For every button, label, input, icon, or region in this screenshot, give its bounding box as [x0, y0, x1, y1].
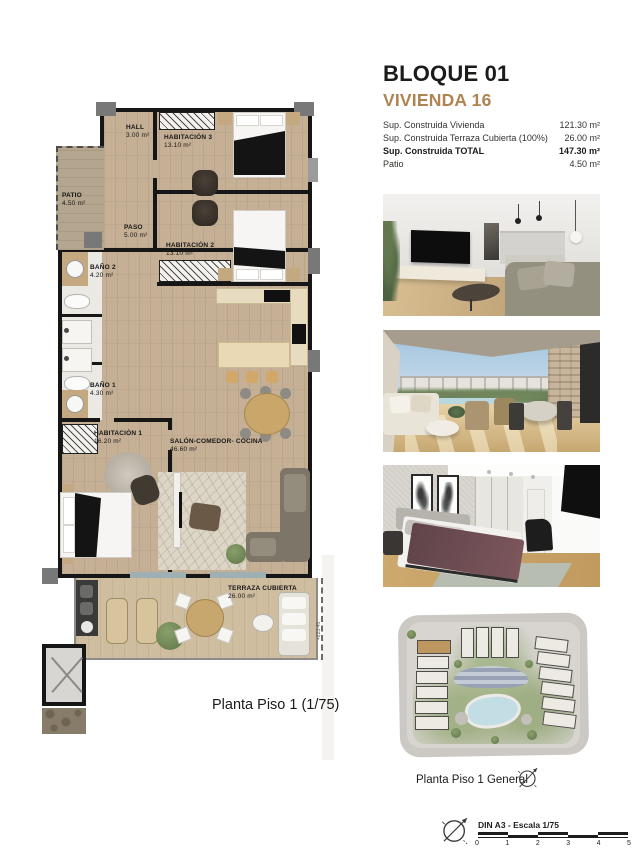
- toilet: [64, 294, 90, 309]
- terrace-dashed-edge: [321, 578, 323, 660]
- scale-tick: 5: [627, 840, 631, 847]
- shower-head: [64, 328, 69, 333]
- nightstand: [383, 531, 403, 555]
- patio-door: [84, 232, 102, 248]
- hab1-right-wall: [168, 418, 172, 430]
- sink: [66, 395, 84, 413]
- scale-block: DIN A3 - Escala 1/75 0 1 2 3 4 5: [478, 820, 631, 847]
- outdoor-kitchen: [76, 580, 98, 636]
- room-label-habitacion3: HABITACIÓN 313.10 m²: [164, 134, 212, 150]
- photo-living-room: [383, 194, 600, 316]
- tv: [411, 230, 470, 264]
- tree: [527, 730, 537, 740]
- tree: [491, 736, 499, 744]
- pendant-lamp: [518, 204, 519, 220]
- corridor-wall: [153, 112, 157, 160]
- wardrobe: [159, 112, 215, 130]
- block-title: BLOQUE 01: [383, 61, 510, 87]
- door-jamb: [42, 568, 58, 584]
- building-unit: [476, 627, 489, 658]
- grill: [80, 585, 93, 598]
- bedroom-divider-wall: [157, 190, 312, 194]
- artwork-print: [415, 481, 429, 513]
- scale-numbers: 0 1 2 3 4 5: [475, 840, 631, 847]
- sink: [66, 260, 84, 278]
- hab1-top-wall: [62, 418, 100, 422]
- window: [308, 158, 318, 182]
- coffee-table: [426, 420, 459, 436]
- sofa-cushion: [410, 394, 431, 413]
- building-highlighted-unit: [417, 640, 451, 654]
- pillow: [63, 497, 75, 525]
- kitchen-island: [218, 342, 290, 368]
- coffee-table-leg: [470, 299, 472, 311]
- outdoor-sofa: [278, 592, 310, 656]
- stool: [266, 371, 278, 383]
- outdoor-table: [186, 599, 224, 637]
- grill: [80, 602, 93, 615]
- blanket: [234, 247, 285, 269]
- chair: [525, 518, 553, 551]
- floorplan: +223.45 HALL3.00 m² HABITACIÓN 313.10 m²…: [40, 100, 342, 750]
- hab1-top-wall: [114, 418, 172, 422]
- surface-label: Patio: [383, 158, 404, 171]
- scale-tick: 1: [505, 840, 509, 847]
- surface-label: Sup. Construida Terraza Cubierta (100%): [383, 132, 548, 145]
- tv: [561, 465, 600, 519]
- scale-segment: [478, 832, 508, 835]
- siteplan: [399, 612, 588, 762]
- surface-row-total: Sup. Construida TOTAL147.30 m²: [383, 145, 600, 158]
- spotlight: [487, 470, 491, 474]
- surface-value: 121.30 m²: [559, 119, 600, 132]
- sofa-cushion: [542, 261, 575, 288]
- siteplan-caption: Planta Piso 1 General: [416, 774, 528, 786]
- pergola-rows: [454, 666, 528, 688]
- scale-tick: 3: [566, 840, 570, 847]
- building-unit: [491, 627, 504, 658]
- armchair: [192, 170, 218, 196]
- dining-table: [244, 393, 290, 435]
- room-label-bano2: BAÑO 24.20 m²: [90, 264, 116, 280]
- blanket: [75, 493, 101, 557]
- door-jamb: [96, 102, 116, 116]
- outdoor-sink: [81, 621, 93, 633]
- building-unit: [415, 701, 448, 714]
- stool: [226, 371, 238, 383]
- salon-divider-wall: [157, 282, 312, 286]
- building-unit: [417, 656, 449, 669]
- scale-segment: [508, 835, 538, 838]
- scale-tick: 0: [475, 840, 479, 847]
- building-unit: [416, 671, 448, 684]
- elevator: [42, 644, 86, 706]
- sun-lounger: [106, 598, 128, 644]
- window: [308, 350, 320, 372]
- coffee-table: [188, 502, 221, 532]
- terrace-outline: [322, 555, 334, 760]
- pendant-lamp: [539, 201, 540, 215]
- scale-tick: 4: [597, 840, 601, 847]
- shower-head: [64, 356, 69, 361]
- scale-segment: [568, 835, 598, 838]
- surface-label: Sup. Construida Vivienda: [383, 119, 484, 132]
- tv: [179, 492, 182, 528]
- ceiling: [448, 465, 567, 476]
- dark-glass: [580, 342, 600, 423]
- surface-label: Sup. Construida TOTAL: [383, 145, 484, 158]
- nightstand: [218, 112, 232, 125]
- stone-path: [42, 708, 86, 734]
- brochure-page: +223.45 HALL3.00 m² HABITACIÓN 313.10 m²…: [0, 0, 637, 853]
- building-unit: [461, 628, 474, 658]
- bed-1: [60, 492, 132, 558]
- dining-chair: [557, 401, 572, 430]
- sphere-lamp: [570, 231, 582, 243]
- scale-bar: [478, 832, 628, 838]
- rattan-chair: [465, 401, 489, 430]
- pillow: [236, 269, 259, 280]
- fridge: [292, 324, 306, 344]
- scale-segment: [538, 832, 568, 835]
- outdoor-dining-set: [176, 588, 234, 648]
- sofa-cushion: [282, 613, 306, 625]
- pendant-lamp: [515, 218, 521, 224]
- surface-row: Sup. Construida Terraza Cubierta (100%)2…: [383, 132, 600, 145]
- north-arrow-icon: [438, 814, 472, 848]
- scale-segment: [598, 832, 628, 835]
- plant-pot: [448, 406, 465, 418]
- nightstand: [286, 112, 300, 125]
- tree: [407, 630, 416, 639]
- artwork-print: [441, 482, 455, 514]
- plaza-dome: [455, 712, 468, 725]
- nightstand: [218, 268, 232, 281]
- tree: [451, 728, 461, 738]
- plaza-dome: [521, 714, 532, 725]
- sliding-door: [210, 572, 266, 578]
- armchair: [192, 200, 218, 226]
- compass-icon: [514, 764, 542, 792]
- nightstand: [62, 484, 74, 492]
- nightstand: [286, 268, 300, 281]
- sofa-cushion: [282, 629, 306, 641]
- wardrobe: [62, 424, 98, 454]
- room-label-salon: SALÓN-COMEDOR- COCINA46.60 m²: [170, 438, 263, 454]
- scale-label: DIN A3 - Escala 1/75: [478, 820, 631, 830]
- dining-table: [522, 401, 557, 422]
- building-unit: [415, 716, 449, 730]
- elevation-marker: +223.45: [316, 622, 322, 640]
- photo-bedroom: [383, 465, 600, 587]
- blanket: [234, 131, 285, 175]
- room-label-hall: HALL3.00 m²: [126, 124, 149, 140]
- unit-title: VIVIENDA 16: [383, 90, 492, 111]
- stool: [246, 371, 258, 383]
- pillow: [236, 115, 259, 126]
- dining-chair: [509, 403, 524, 430]
- room-label-patio: PATIO4.50 m²: [62, 192, 85, 208]
- dining-set: [236, 386, 298, 442]
- spotlight: [531, 475, 535, 479]
- sphere-lamp: [575, 200, 576, 232]
- room-label-bano1: BAÑO 14.30 m²: [90, 382, 116, 398]
- sofa-cushion: [389, 395, 410, 414]
- surface-table: Sup. Construida Vivienda121.30 m² Sup. C…: [383, 119, 600, 171]
- side-table: [252, 614, 274, 632]
- sliding-door: [130, 572, 186, 578]
- bed-3: [233, 112, 286, 178]
- tree: [454, 660, 462, 668]
- pillow: [260, 269, 283, 280]
- scale-tick: 2: [536, 840, 540, 847]
- photo-terrace: [383, 330, 600, 452]
- cooktop: [264, 290, 290, 302]
- chair: [240, 388, 251, 399]
- surface-value: 147.30 m²: [559, 145, 600, 158]
- artwork: [484, 223, 499, 260]
- room-label-habitacion2: HABITACIÓN 213.10 m²: [166, 242, 214, 258]
- plant: [226, 544, 246, 564]
- room-label-habitacion1: HABITACIÓN 116.20 m²: [94, 430, 142, 446]
- surface-row: Patio4.50 m²: [383, 158, 600, 171]
- bath-divider: [62, 314, 102, 317]
- floorplan-caption: Planta Piso 1 (1/75): [212, 697, 339, 713]
- tree: [525, 660, 533, 668]
- room-label-terraza: TERRAZA CUBIERTA26.00 m²: [228, 585, 297, 601]
- building-unit: [416, 686, 448, 699]
- pendant-lamp: [536, 215, 542, 221]
- sun-lounger: [136, 598, 158, 644]
- plant: [383, 221, 400, 302]
- toilet: [64, 376, 90, 391]
- sofa-cushion: [284, 474, 306, 512]
- pillow: [63, 525, 75, 553]
- sofa-cushion: [250, 538, 276, 556]
- surface-row: Sup. Construida Vivienda121.30 m²: [383, 119, 600, 132]
- room-label-paso: PASO5.00 m²: [124, 224, 147, 240]
- surface-value: 4.50 m²: [569, 158, 600, 171]
- surface-value: 26.00 m²: [564, 132, 600, 145]
- window: [308, 248, 320, 274]
- bed-2: [233, 210, 286, 282]
- building-unit: [506, 628, 519, 658]
- pillow: [260, 115, 283, 126]
